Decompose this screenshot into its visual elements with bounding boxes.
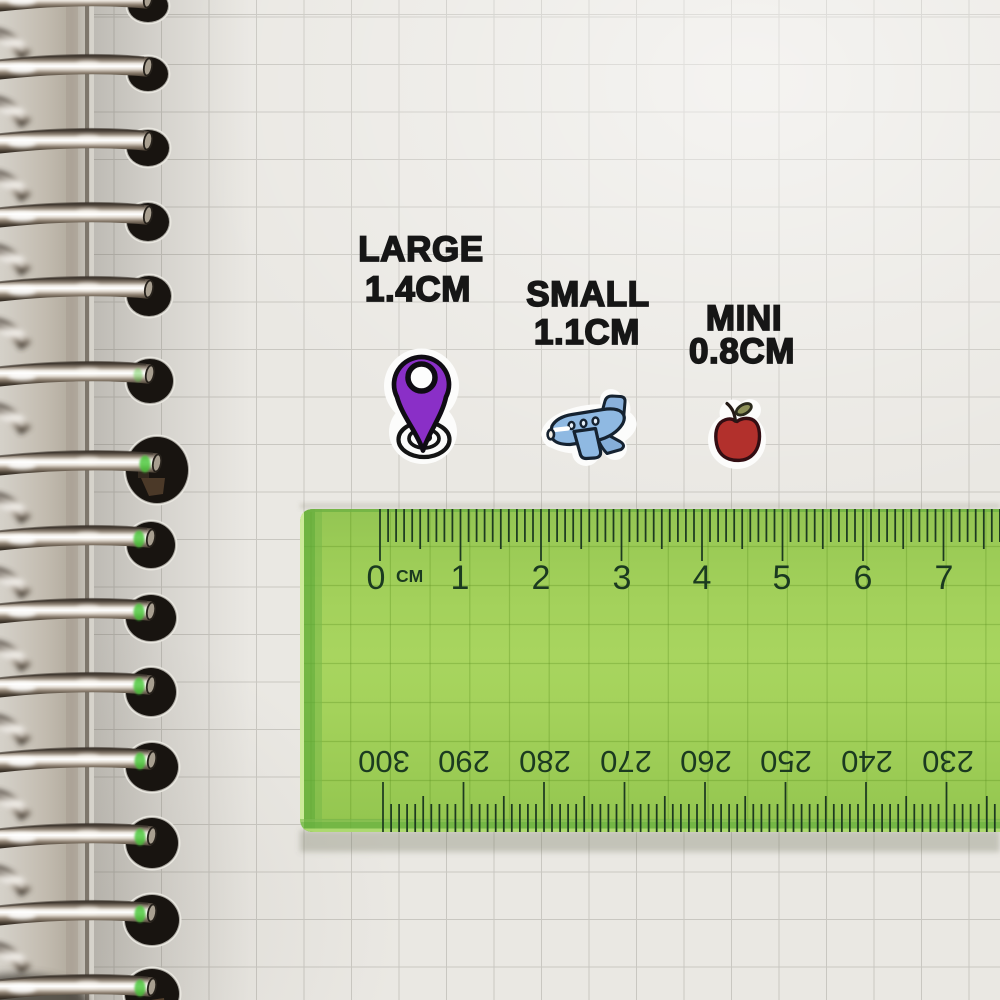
svg-text:290: 290 bbox=[438, 744, 490, 779]
svg-text:300: 300 bbox=[358, 744, 410, 779]
svg-text:6: 6 bbox=[854, 559, 873, 597]
svg-text:0: 0 bbox=[367, 559, 386, 597]
svg-text:270: 270 bbox=[600, 744, 652, 779]
svg-text:1: 1 bbox=[451, 559, 470, 597]
svg-text:260: 260 bbox=[680, 744, 732, 779]
svg-text:240: 240 bbox=[841, 744, 893, 779]
svg-text:CM: CM bbox=[396, 566, 423, 586]
svg-text:3: 3 bbox=[613, 559, 632, 597]
svg-text:2: 2 bbox=[532, 559, 551, 597]
svg-text:230: 230 bbox=[922, 744, 974, 779]
svg-text:250: 250 bbox=[760, 744, 812, 779]
svg-text:4: 4 bbox=[693, 559, 712, 597]
svg-text:280: 280 bbox=[519, 744, 571, 779]
svg-text:7: 7 bbox=[935, 559, 954, 597]
svg-text:5: 5 bbox=[773, 559, 792, 597]
